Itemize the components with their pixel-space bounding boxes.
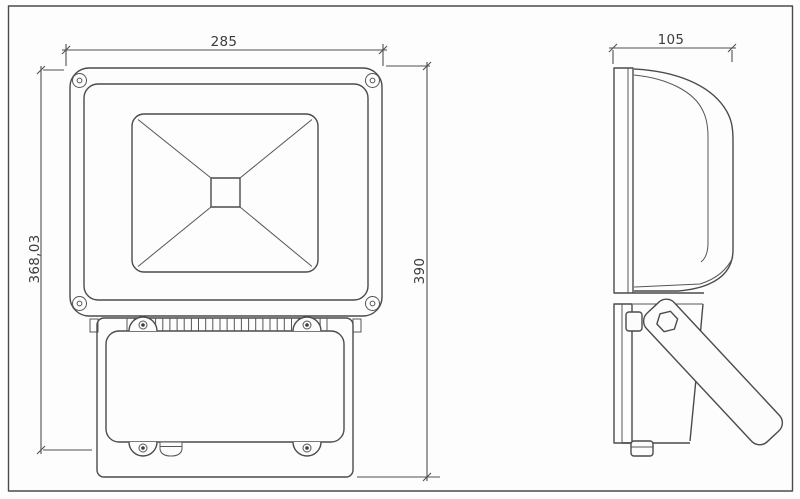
dim-label-390: 390 [412,258,428,285]
technical-drawing-floodlight: 285 368,03 390 [0,0,800,499]
drawing-canvas: 285 368,03 390 [0,0,800,499]
side-hinge-block [626,312,642,331]
front-junction-box [90,317,361,477]
dimension-width-285: 285 [62,34,387,66]
side-foot-tab [631,441,653,456]
side-view [614,68,787,456]
dimension-height-368: 368,03 [27,66,92,454]
mounting-bracket [639,295,787,450]
side-housing-shell [634,69,733,291]
dim-label-105: 105 [658,32,685,48]
dimension-height-390: 390 [357,62,440,481]
dimension-depth-105: 105 [609,32,736,64]
dim-label-285: 285 [211,34,238,50]
front-view [70,68,382,477]
shell-rim-line [634,257,733,287]
junction-box-cover-plate [106,331,344,442]
front-corner-screws [73,74,380,311]
front-glass-bezel [84,84,368,300]
cover-plate-screws [139,321,311,452]
led-chip-square [211,178,240,207]
cover-plate-screw-bumps [129,317,321,456]
junction-box-right-ear [353,319,361,332]
cable-gland-tab [160,442,182,456]
side-front-face [614,68,633,293]
front-body-outline [70,68,382,316]
drawing-border [9,6,793,491]
front-reflector [132,114,318,272]
dim-label-368: 368,03 [27,234,43,283]
